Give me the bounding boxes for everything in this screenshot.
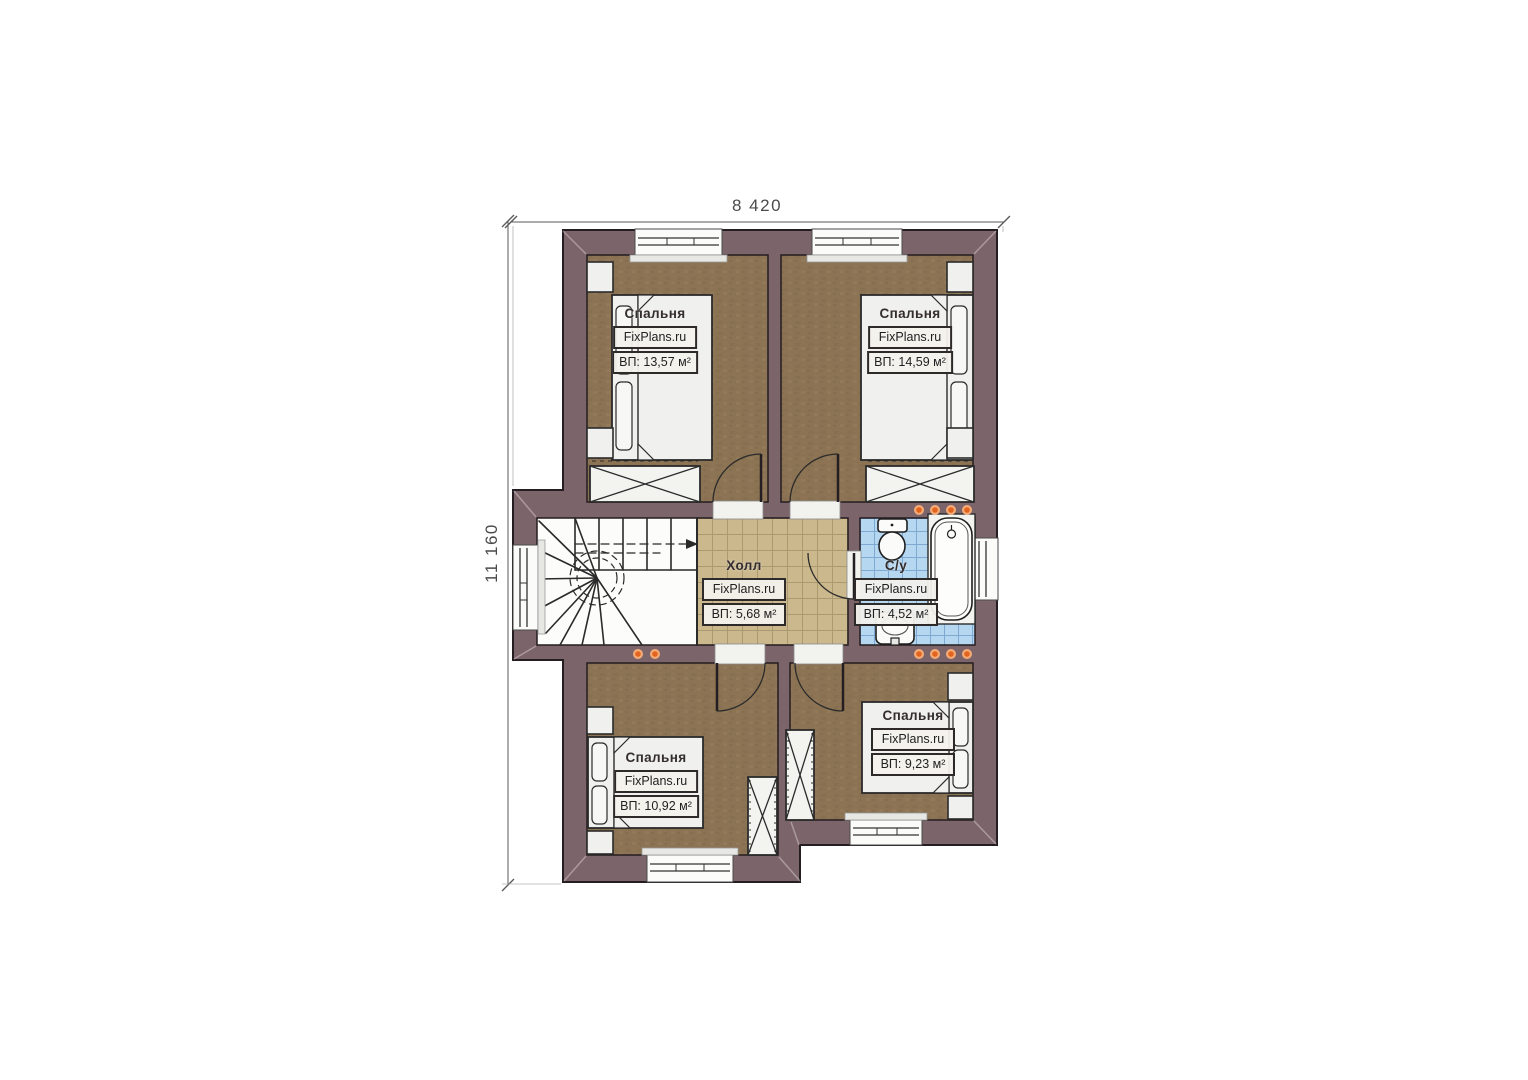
room-brand-box: FixPlans.ru [871,728,955,751]
window-stair-left [513,540,545,634]
spot-light [946,505,956,515]
room-name: Спальня [625,750,686,765]
nightstand [948,673,973,700]
window-top-right [807,229,907,262]
room-brand-box: FixPlans.ru [613,326,697,349]
nightstand [948,796,973,819]
nightstand [587,428,613,458]
room-brand-box: FixPlans.ru [868,326,952,349]
room-name: Спальня [879,306,940,321]
room-name: Спальня [624,306,685,321]
nightstand [947,428,973,458]
room-area-box: ВП: 5,68 м² [702,603,786,626]
door-opening [713,501,763,519]
room-label-hall: Холл FixPlans.ru ВП: 5,68 м² [702,558,786,626]
dimension-width-label: 8 420 [732,196,782,216]
spot-light [930,505,940,515]
dimension-height-label: 11 160 [482,523,502,583]
wardrobe [786,730,814,820]
nightstand [587,707,613,734]
room-brand-box: FixPlans.ru [854,578,938,601]
window-top-left [630,229,727,262]
room-area-box: ВП: 13,57 м² [612,351,698,374]
room-label-bedroom-top-right: Спальня FixPlans.ru ВП: 14,59 м² [867,306,953,374]
wardrobe [590,461,700,502]
spot-light [914,505,924,515]
toilet-icon [878,519,907,560]
floor-plan-page: 8 420 11 160 Спальня FixPlans.ru ВП: 13,… [0,0,1528,1080]
window-bottom-right [845,813,927,845]
window-bottom-left [642,848,738,882]
spot-light [650,649,660,659]
room-label-bathroom: С/у FixPlans.ru ВП: 4,52 м² [854,558,938,626]
wardrobe [748,777,777,855]
spot-light [930,649,940,659]
room-area-box: ВП: 9,23 м² [871,753,955,776]
door-opening [790,501,840,519]
floor-plan-drawing [0,0,1528,1080]
room-name: Спальня [882,708,943,723]
nightstand [587,831,613,854]
room-area-box: ВП: 10,92 м² [613,795,699,818]
room-area-box: ВП: 14,59 м² [867,351,953,374]
spot-light [914,649,924,659]
room-brand-box: FixPlans.ru [614,770,698,793]
spot-light [633,649,643,659]
room-label-bedroom-top-left: Спальня FixPlans.ru ВП: 13,57 м² [612,306,698,374]
spot-light [962,505,972,515]
door-opening [794,644,843,664]
room-name: С/у [885,558,907,573]
door-opening [715,644,765,664]
spot-light [962,649,972,659]
room-label-bedroom-bottom-right: Спальня FixPlans.ru ВП: 9,23 м² [871,708,955,776]
room-area-box: ВП: 4,52 м² [854,603,938,626]
nightstand [587,262,613,292]
room-brand-box: FixPlans.ru [702,578,786,601]
wardrobe [866,461,974,502]
spot-light [946,649,956,659]
nightstand [947,262,973,292]
room-name: Холл [726,558,762,573]
room-label-bedroom-bottom-left: Спальня FixPlans.ru ВП: 10,92 м² [613,750,699,818]
